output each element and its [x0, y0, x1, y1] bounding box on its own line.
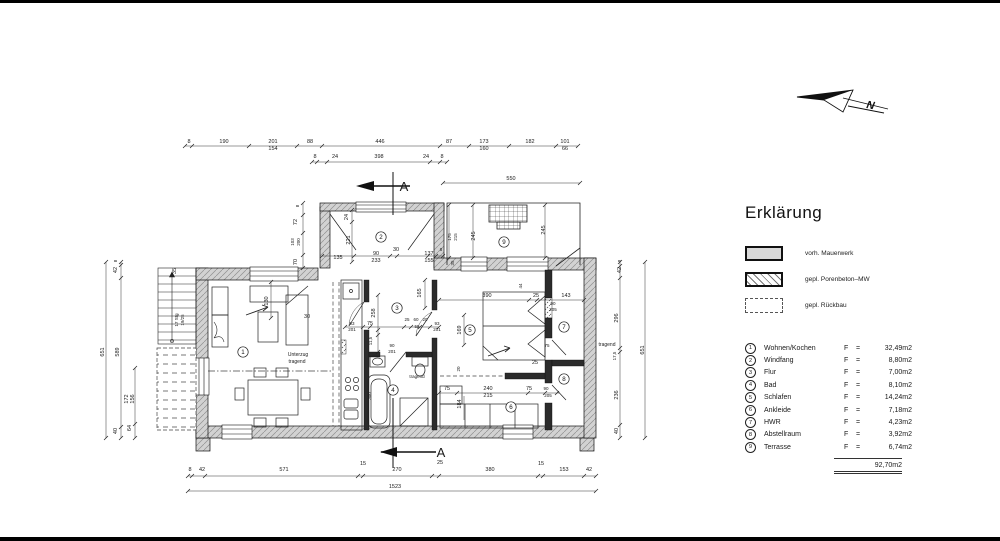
dim-label: 70	[293, 259, 299, 265]
room-list-cell: Bad	[764, 382, 844, 389]
dim-label: 42	[586, 467, 592, 473]
stairs	[158, 268, 196, 344]
dim-label: 1523	[389, 484, 401, 490]
room-list-cell: F	[844, 394, 856, 401]
legend-title: Erklärung	[745, 203, 935, 223]
room-list-cell: F	[844, 357, 856, 364]
room-number-badge: 8	[745, 429, 756, 440]
dim-label: 17 Stg	[174, 313, 179, 327]
room-number-badge: 3	[745, 367, 756, 378]
vorh-mauerwerk-swatch	[745, 246, 783, 261]
dim-label: 30	[393, 247, 399, 253]
room-marker-number: 3	[395, 305, 399, 312]
legend-item-label: vorh. Mauerwerk	[805, 250, 853, 257]
dim-label: 72	[293, 219, 299, 225]
room-list-row: 1Wohnen/KochenF=32,49m2	[745, 342, 935, 354]
dim-label: 35	[450, 260, 455, 266]
room-number-badge: 2	[745, 355, 756, 366]
dim-label: Unterzug	[288, 352, 309, 358]
dim-label: 25	[404, 317, 410, 322]
room-list-cell: F	[844, 431, 856, 438]
dim-label: 8	[617, 259, 622, 262]
dim-label: 184	[457, 399, 463, 408]
room-list-cell: 14,24m2	[868, 394, 912, 401]
dim-label: A	[400, 179, 409, 194]
legend-item-gepl-rueckbau: gepl. Rückbau	[745, 297, 935, 314]
dim-label: 190	[219, 139, 228, 145]
room-number-badge: 5	[745, 392, 756, 403]
dim-label: 143	[561, 293, 570, 299]
dim-label: 24	[332, 154, 338, 160]
dim-label: 300	[367, 392, 372, 400]
legend-item-vorh-mauerwerk: vorh. Mauerwerk	[745, 245, 935, 262]
dim-label: 201	[433, 327, 441, 332]
room-marker-number: 8	[562, 376, 566, 383]
dim-label: 8	[440, 154, 443, 160]
room-marker-number: 2	[379, 234, 383, 241]
room-marker-number: 9	[502, 239, 506, 246]
room-list-row: 5SchlafenF=14,24m2	[745, 392, 935, 404]
room-list-cell: =	[856, 394, 868, 401]
room-marker-number: 1	[241, 349, 245, 356]
room-list-cell: =	[856, 419, 868, 426]
dim-label: tragend	[409, 374, 425, 379]
dim-label: 64	[127, 425, 133, 431]
dim-label: 205	[544, 393, 552, 398]
room-list-row: 8AbstellraumF=3,92m2	[745, 429, 935, 441]
dim-label: 446	[375, 139, 384, 145]
furniture	[212, 214, 566, 430]
room-list-cell: =	[856, 407, 868, 414]
dim-label: 130	[264, 296, 270, 305]
dim-label: 101	[560, 139, 569, 145]
dim-label: 550	[506, 176, 515, 182]
legend-panel: Erklärung vorh. Mauerwerkgepl. Porenbeto…	[745, 203, 935, 474]
dim-label: 201	[268, 139, 277, 145]
dim-label: 75	[444, 386, 450, 392]
dim-label: 8	[188, 467, 191, 473]
dim-label: 8	[295, 204, 300, 207]
dim-label: 390	[482, 293, 491, 299]
dim-label: 90	[550, 301, 556, 306]
room-list-cell: Ankleide	[764, 407, 844, 414]
room-list-cell: 7,18m2	[868, 407, 912, 414]
room-list-row: 2WindfangF=8,80m2	[745, 354, 935, 366]
dim-label: 155	[424, 258, 433, 264]
room-list-cell: Windfang	[764, 357, 844, 364]
dim-label: 245	[541, 225, 547, 234]
dim-label: 103	[290, 238, 295, 246]
room-number-badge: 9	[745, 442, 756, 453]
legend-item-label: gepl. Porenbeton–MW	[805, 276, 870, 283]
dim-label: 169	[457, 325, 463, 334]
dim-label: 90	[389, 343, 395, 348]
room-list-cell: 8,80m2	[868, 357, 912, 364]
dim-label: 205	[549, 307, 557, 312]
dim-label: 42	[617, 267, 623, 273]
room-list-cell: Schlafen	[764, 394, 844, 401]
room-list-row: 4BadF=8,10m2	[745, 379, 935, 391]
dim-label: A	[437, 445, 446, 460]
dim-label: 87	[446, 139, 452, 145]
legend-item-gepl-porenbeton: gepl. Porenbeton–MW	[745, 271, 935, 288]
dim-label: 233	[371, 258, 380, 264]
dim-label: tragend	[289, 359, 306, 365]
dim-label: 651	[640, 345, 646, 354]
gepl-porenbeton-swatch	[745, 272, 783, 287]
gepl-rueckbau-swatch	[745, 298, 783, 313]
dim-label: 200	[296, 238, 301, 246]
dashed-elements	[157, 282, 505, 430]
dim-label: 11,5	[368, 336, 373, 345]
room-marker-number: 5	[468, 327, 472, 334]
dim-label: 30	[304, 314, 310, 320]
room-marker-number: 7	[562, 324, 566, 331]
room-list-cell: F	[844, 345, 856, 352]
dim-label: 90	[373, 251, 379, 257]
dim-label: 398	[374, 154, 383, 160]
room-list-cell: F	[844, 382, 856, 389]
dim-label: 66	[562, 146, 568, 152]
dim-label: 25	[532, 360, 538, 366]
dim-label: 296	[614, 313, 620, 322]
dim-label: 90	[543, 386, 549, 391]
room-list-cell: 6,74m2	[868, 444, 912, 451]
room-number-badge: 7	[745, 417, 756, 428]
dim-label: 173	[479, 139, 488, 145]
dim-label: 35	[172, 268, 178, 274]
dim-label: 8	[113, 259, 118, 262]
room-list-row: 7HWRF=4,23m2	[745, 416, 935, 428]
dim-label: 571	[279, 467, 288, 473]
room-marker-number: 4	[391, 387, 395, 394]
room-list-cell: 4,23m2	[868, 419, 912, 426]
dim-label: 15	[360, 461, 366, 467]
dim-label: 75	[367, 321, 373, 327]
dim-label: 24	[344, 214, 350, 220]
dim-label: 154	[268, 146, 277, 152]
room-list-cell: F	[844, 407, 856, 414]
dim-label: 8	[187, 139, 190, 145]
dim-label: 25	[533, 293, 539, 299]
room-list-cell: 32,49m2	[868, 345, 912, 352]
legend-items: vorh. Mauerwerkgepl. Porenbeton–MWgepl. …	[745, 245, 935, 314]
dim-label: 153	[559, 467, 568, 473]
room-list-cell: 8,10m2	[868, 382, 912, 389]
dim-label: 165	[417, 288, 423, 297]
room-list-cell: F	[844, 419, 856, 426]
dim-label: 75	[544, 343, 550, 348]
room-list-cell: Wohnen/Kochen	[764, 345, 844, 352]
room-list-cell: Terrasse	[764, 444, 844, 451]
dim-label: 221	[346, 235, 352, 244]
dim-label: 270	[392, 467, 401, 473]
room-list-row: 9TerrasseF=6,74m2	[745, 441, 935, 453]
room-list-cell: Flur	[764, 369, 844, 376]
room-list-cell: HWR	[764, 419, 844, 426]
dim-label: 160	[479, 146, 488, 152]
room-list-cell: F	[844, 369, 856, 376]
dim-label: 182	[525, 139, 534, 145]
dim-label: 236	[614, 390, 620, 399]
dim-label: 245	[471, 231, 477, 240]
dim-label: tragend	[599, 342, 616, 348]
dim-label: 42	[199, 467, 205, 473]
dim-label: 93	[434, 321, 440, 326]
dim-label: 135	[333, 255, 342, 261]
room-list-cell: =	[856, 444, 868, 451]
dim-label: 93	[349, 321, 355, 326]
terrace	[447, 203, 580, 266]
room-list-cell: =	[856, 369, 868, 376]
dim-label: 20	[422, 317, 428, 322]
room-number-badge: 6	[745, 405, 756, 416]
dim-label: 42	[113, 267, 119, 273]
room-list-row: 6AnkleideF=7,18m2	[745, 404, 935, 416]
north-arrow-icon: N	[797, 90, 888, 113]
room-number-badge: 4	[745, 380, 756, 391]
dim-label: 137	[424, 251, 433, 257]
room-list-cell: F	[844, 444, 856, 451]
dim-label: 24	[423, 154, 429, 160]
dim-label: 175	[447, 233, 452, 241]
dim-label: 240	[483, 386, 492, 392]
room-list-cell: =	[856, 431, 868, 438]
room-list-cell: =	[856, 382, 868, 389]
dim-label: 40	[614, 428, 620, 434]
dim-label: 88	[307, 139, 313, 145]
dim-label: 40	[113, 428, 119, 434]
room-list-cell: =	[856, 357, 868, 364]
dim-label: 651	[100, 347, 106, 356]
total-area: 92,70m2	[834, 458, 902, 474]
dim-label: 15	[538, 461, 544, 467]
room-list-cell: =	[856, 345, 868, 352]
legend-item-label: gepl. Rückbau	[805, 302, 847, 309]
dim-label: 156	[130, 394, 136, 403]
dim-label: 25	[437, 460, 443, 466]
dim-label: 8	[313, 154, 316, 160]
room-area-list: 1Wohnen/KochenF=32,49m22WindfangF=8,80m2…	[745, 342, 935, 454]
dim-label: 201	[388, 349, 396, 354]
room-list-row: 3FlurF=7,00m2	[745, 367, 935, 379]
dim-label: 55	[414, 324, 420, 329]
dim-label: 258	[371, 308, 377, 317]
dim-label: 215	[453, 233, 458, 241]
room-marker-number: 6	[509, 404, 513, 411]
total-row: 92,70m2	[745, 458, 902, 474]
room-list-cell: Abstellraum	[764, 431, 844, 438]
room-number-badge: 1	[745, 343, 756, 354]
dim-label: 20	[456, 366, 461, 372]
dim-label: 75	[526, 386, 532, 392]
dim-label: 19/25	[180, 314, 185, 326]
dim-label: 215	[483, 393, 492, 399]
room-list-cell: 7,00m2	[868, 369, 912, 376]
dim-label: 589	[115, 347, 121, 356]
dim-label: 380	[485, 467, 494, 473]
dim-label: 44	[518, 283, 523, 289]
dim-label: 201	[348, 327, 356, 332]
dim-label: 60	[413, 317, 419, 322]
room-list-cell: 3,92m2	[868, 431, 912, 438]
dim-label: 17,5	[612, 351, 617, 360]
